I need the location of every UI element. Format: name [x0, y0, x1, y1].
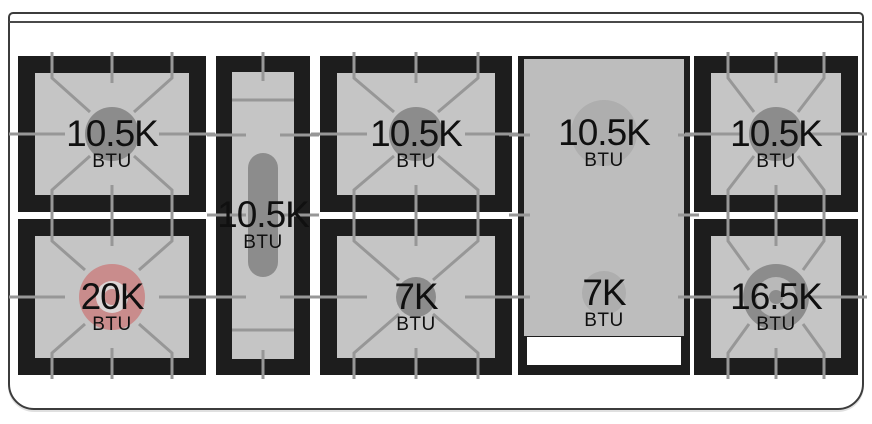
- burner-station-rear-left: 10.5KBTU: [18, 56, 206, 212]
- griddle-handle: [527, 337, 681, 365]
- grate-graphic: [694, 219, 858, 375]
- grate-graphic: [18, 56, 206, 212]
- burner-station-center-oval: 10.5KBTU: [216, 56, 310, 375]
- cooktop-back-rail: [9, 12, 863, 23]
- burner-station-front-left: 20KBTU: [18, 219, 206, 375]
- grate-graphic: [216, 56, 310, 375]
- griddle-graphic: [518, 56, 690, 375]
- grate-graphic: [694, 56, 858, 212]
- burner-station-rear-right: 10.5KBTU: [694, 56, 858, 212]
- burner-station-front-center: 7KBTU: [320, 219, 512, 375]
- burner-station-front-right: 16.5KBTU: [694, 219, 858, 375]
- grate-graphic: [320, 219, 512, 375]
- burner-station-rear-center: 10.5KBTU: [320, 56, 512, 212]
- grate-graphic: [320, 56, 512, 212]
- grate-graphic: [18, 219, 206, 375]
- burner-station-griddle: 10.5KBTU7KBTU: [518, 56, 690, 375]
- cooktop-diagram: 10.5KBTU20KBTU10.5KBTU10.5KBTU7KBTU10.5K…: [0, 0, 872, 424]
